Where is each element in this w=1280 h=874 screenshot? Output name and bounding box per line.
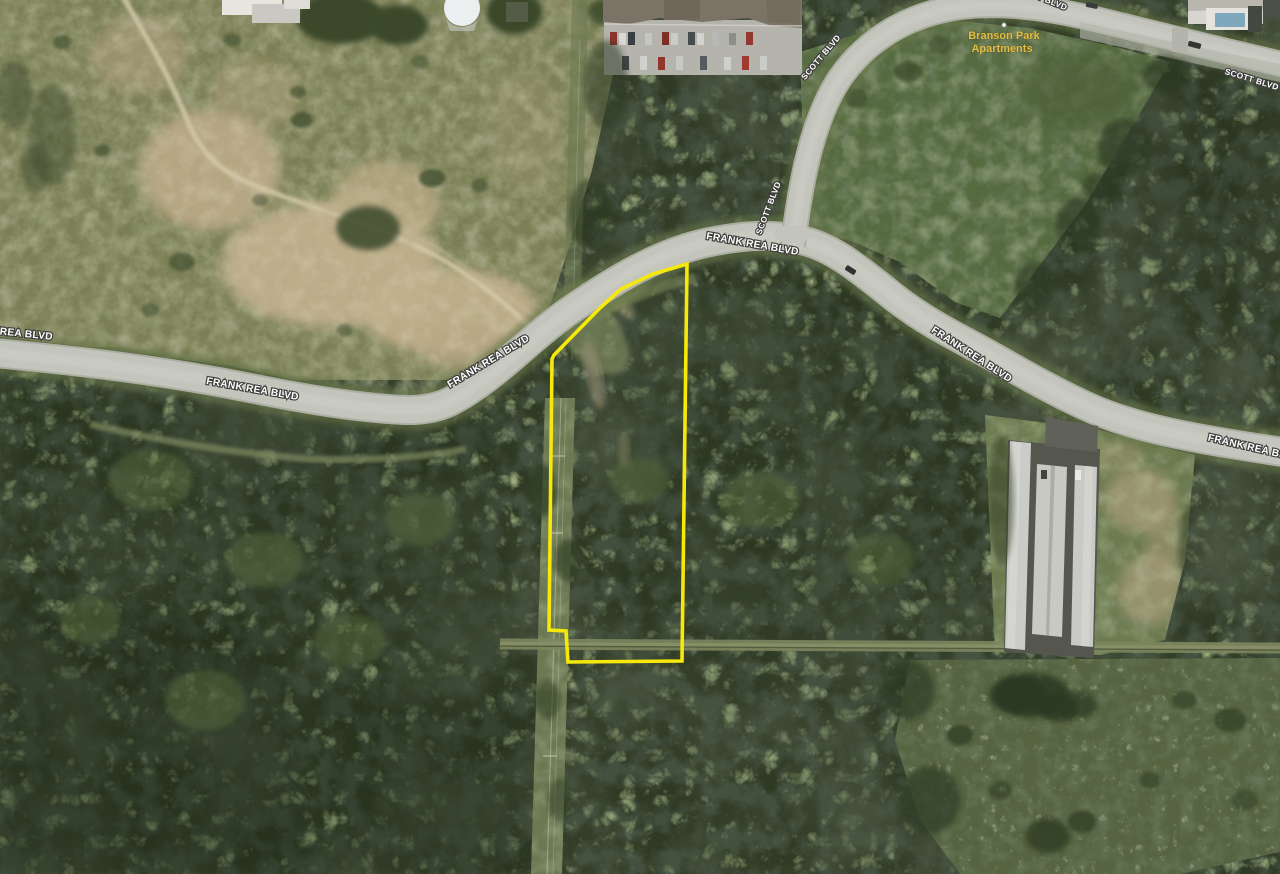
svg-text:Apartments: Apartments xyxy=(971,43,1032,55)
svg-text:Branson Park: Branson Park xyxy=(968,30,1040,42)
